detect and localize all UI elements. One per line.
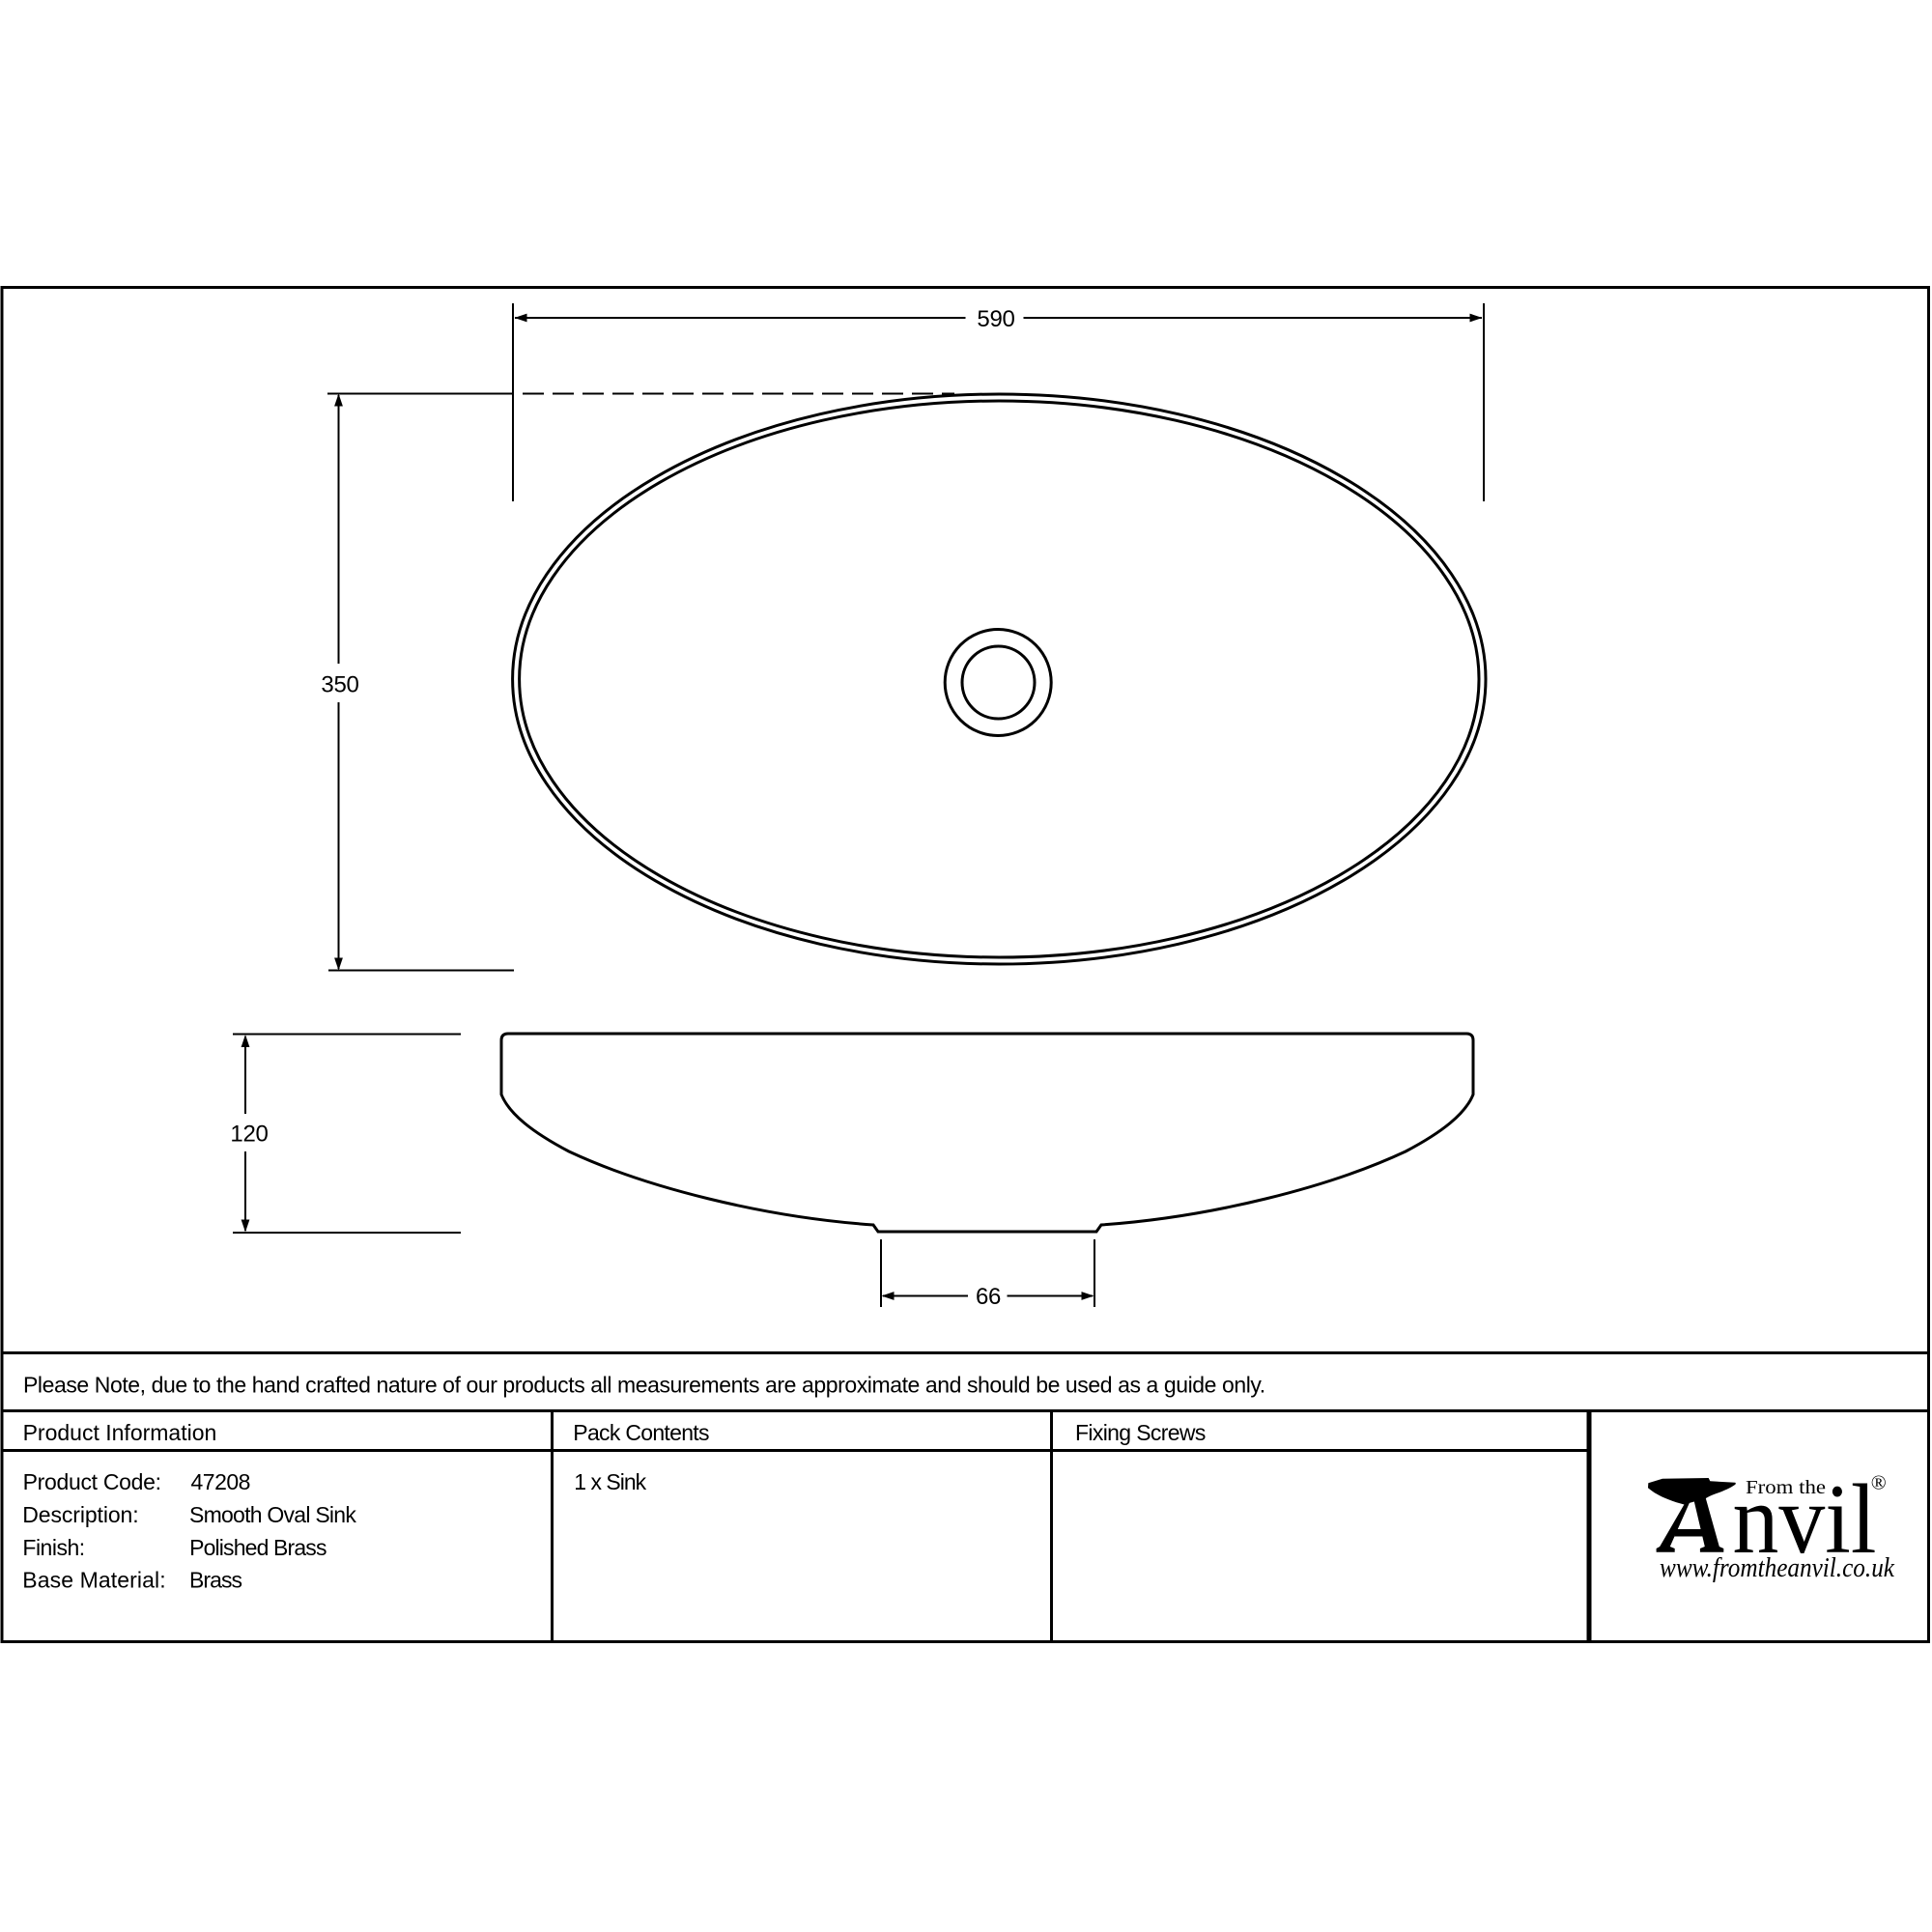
svg-text:www.fromtheanvil.co.uk: www.fromtheanvil.co.uk <box>1660 1553 1895 1583</box>
svg-text:66: 66 <box>976 1284 1001 1310</box>
svg-text:1 x Sink: 1 x Sink <box>574 1469 646 1494</box>
svg-text:Fixing Screws: Fixing Screws <box>1075 1420 1206 1445</box>
svg-text:350: 350 <box>321 672 358 698</box>
svg-text:Product Information: Product Information <box>23 1420 217 1445</box>
svg-text:Pack Contents: Pack Contents <box>573 1420 709 1445</box>
svg-text:Description:: Description: <box>22 1502 138 1527</box>
svg-text:Please Note, due to the hand c: Please Note, due to the hand crafted nat… <box>23 1373 1265 1398</box>
svg-text:Polished Brass: Polished Brass <box>189 1535 327 1560</box>
svg-text:Product Code:: Product Code: <box>23 1469 161 1494</box>
svg-text:Finish:: Finish: <box>22 1535 84 1560</box>
svg-text:590: 590 <box>977 306 1014 332</box>
svg-text:120: 120 <box>230 1122 268 1148</box>
svg-text:Brass: Brass <box>189 1568 241 1593</box>
svg-text:®: ® <box>1871 1471 1887 1494</box>
svg-text:Smooth Oval Sink: Smooth Oval Sink <box>189 1502 356 1527</box>
svg-text:47208: 47208 <box>191 1469 250 1494</box>
svg-text:Base Material:: Base Material: <box>22 1568 165 1593</box>
